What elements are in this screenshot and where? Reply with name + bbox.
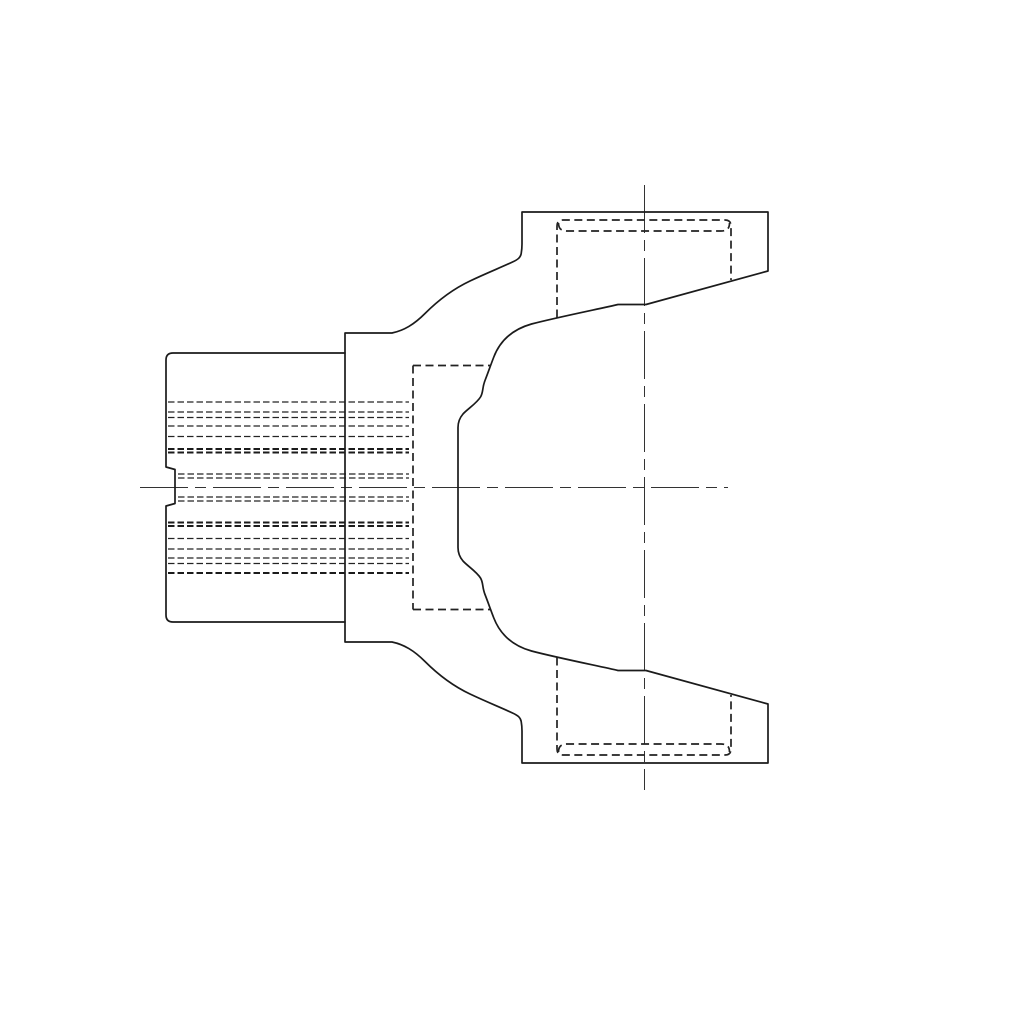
engineering-drawing-canvas	[0, 0, 1024, 1024]
drawing-page	[0, 0, 1024, 1024]
shaft-spline-hidden-lines	[168, 402, 409, 564]
lower-bearing-bore-groove-line	[559, 744, 730, 752]
yoke-body-outline	[345, 212, 768, 763]
shaft-spline-hidden-lines-bold	[168, 449, 409, 573]
